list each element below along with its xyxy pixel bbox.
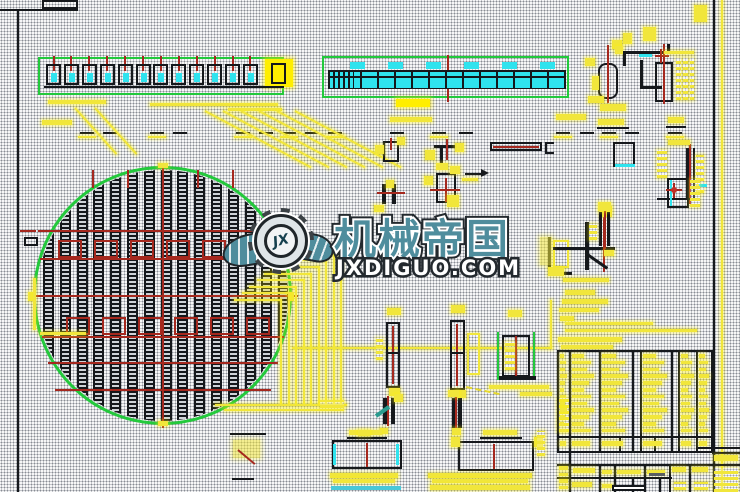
dimension-text-block <box>657 150 667 178</box>
clamp-insert <box>176 73 182 82</box>
dimension-mark <box>666 136 684 138</box>
dimension-mark <box>483 430 517 435</box>
dimension-mark <box>617 470 641 474</box>
centerline <box>515 336 517 380</box>
dimension-mark <box>585 58 595 66</box>
bom-header-text <box>572 441 590 446</box>
clamp-unit <box>118 64 133 85</box>
cyan-highlight <box>540 62 555 69</box>
bom-column-line <box>678 350 680 452</box>
bom-text <box>572 422 584 426</box>
line <box>597 127 629 129</box>
bom-text <box>681 395 692 399</box>
bom-text <box>699 395 708 399</box>
dimension-mark <box>224 409 344 411</box>
line <box>607 212 610 246</box>
clamp-unit <box>189 64 204 85</box>
line <box>659 477 661 492</box>
clamp-unit <box>207 64 222 85</box>
dimension-mark <box>664 51 694 54</box>
green-line <box>533 332 535 380</box>
bom-text <box>602 408 628 412</box>
bom-text <box>643 402 659 406</box>
line <box>557 350 712 352</box>
line <box>640 86 662 89</box>
sheet-border <box>0 9 78 11</box>
red-detail-box <box>130 240 154 258</box>
yellow-detail-box <box>467 333 480 375</box>
bom-text <box>560 408 567 412</box>
frame-tab <box>42 0 78 9</box>
centerline <box>456 324 458 386</box>
cyan-highlight <box>502 62 517 69</box>
bom-text <box>643 422 656 426</box>
dimension-mark <box>430 485 530 490</box>
part-outline <box>24 237 38 246</box>
bom-text <box>560 422 564 426</box>
bom-column-line <box>671 350 673 452</box>
dimension-mark <box>692 467 708 472</box>
title-block-text <box>559 466 568 470</box>
line <box>390 132 404 134</box>
cyan-highlight <box>350 62 365 69</box>
bom-text <box>560 354 564 358</box>
cyan-highlight <box>464 62 479 69</box>
bom-header-text <box>560 441 566 446</box>
bom-text <box>699 422 705 426</box>
bom-text <box>572 368 587 372</box>
beam-side-view <box>328 70 566 89</box>
line <box>689 464 691 492</box>
dimension-halo <box>540 237 552 265</box>
red-detail-box <box>138 317 162 335</box>
bom-text <box>572 381 589 385</box>
dimension-mark <box>600 104 626 111</box>
gear-hub: JX <box>264 224 298 258</box>
bom-text <box>643 361 664 365</box>
line <box>640 60 643 88</box>
line <box>499 376 536 380</box>
dimension-mark <box>432 479 528 483</box>
dimension-mark <box>668 140 690 145</box>
dimension-text-block <box>690 58 694 100</box>
line <box>450 352 465 354</box>
title-block-text <box>559 479 568 483</box>
clamp-unit <box>46 64 61 85</box>
bom-text <box>572 402 587 406</box>
dimension-mark <box>598 119 624 125</box>
bom-column-line <box>569 350 571 452</box>
bom-column-line <box>696 350 698 452</box>
dimension-text-block <box>683 58 688 100</box>
dimension-mark <box>451 305 465 313</box>
dimension-mark <box>78 136 96 138</box>
clamp-unit <box>153 64 168 85</box>
bom-text <box>699 368 706 372</box>
bom-text <box>681 415 691 419</box>
red-detail-box <box>58 240 82 258</box>
bom-text <box>560 402 565 406</box>
margin-line <box>721 0 723 492</box>
beam-edge-line <box>328 76 566 78</box>
bom-text <box>572 429 591 433</box>
bom-text <box>681 381 691 385</box>
bom-text <box>699 408 709 412</box>
bom-text <box>560 381 565 385</box>
winged-gear-icon: JX <box>222 208 334 292</box>
line <box>386 352 400 354</box>
clamp-unit <box>136 64 151 85</box>
bom-text <box>560 429 566 433</box>
center-dot <box>671 187 677 193</box>
bom-column-line <box>599 350 601 452</box>
bom-text <box>602 422 616 426</box>
dimension-mark <box>602 484 612 488</box>
centerline <box>660 49 662 63</box>
dimension-mark <box>40 332 86 335</box>
dimension-mark <box>242 292 288 294</box>
dimension-mark <box>565 322 653 325</box>
centerline <box>377 192 405 194</box>
bom-text <box>681 402 690 406</box>
cyan-bar <box>331 486 401 490</box>
line <box>458 398 462 428</box>
centerline <box>446 139 448 160</box>
dimension-mark <box>559 308 599 312</box>
bom-text <box>681 388 688 392</box>
line <box>347 437 387 439</box>
bom-text <box>643 395 664 399</box>
bom-column-line <box>711 350 713 452</box>
dimension-mark <box>390 117 432 122</box>
dimension-mark <box>643 27 656 41</box>
line <box>698 447 740 449</box>
centerline <box>20 230 36 232</box>
dimension-mark <box>288 292 290 404</box>
bom-text <box>602 402 619 406</box>
title-block-text <box>559 486 568 490</box>
red-detail-box <box>94 240 118 258</box>
bom-text <box>560 395 566 399</box>
bom-text <box>560 368 565 372</box>
dimension-mark <box>333 479 395 483</box>
centerline <box>197 170 199 188</box>
centerline <box>655 55 669 57</box>
line <box>557 436 712 438</box>
bom-text <box>572 415 589 419</box>
bom-text <box>643 368 659 372</box>
bom-text <box>643 415 662 419</box>
leader-line <box>94 107 137 154</box>
dimension-mark <box>33 278 36 330</box>
bom-text <box>602 388 616 392</box>
bom-text <box>681 422 688 426</box>
dimension-mark <box>436 163 448 170</box>
logo-monogram: JX <box>271 231 290 250</box>
bom-text <box>602 361 625 365</box>
dimension-mark <box>520 392 552 396</box>
bom-header-text <box>643 441 662 446</box>
watermark-brand-name: 机械帝国 机械帝国 机械帝国 <box>334 206 538 258</box>
dimension-text-block <box>320 400 344 408</box>
red-detail-box <box>210 317 234 335</box>
dimension-mark <box>573 468 595 473</box>
clamp-unit <box>225 64 240 85</box>
dimension-mark <box>358 430 370 436</box>
line <box>669 464 671 492</box>
bom-text <box>602 395 625 399</box>
line <box>712 452 740 454</box>
clamp-insert <box>105 73 111 82</box>
centerline <box>390 138 392 150</box>
centerline <box>607 45 609 103</box>
bom-text <box>560 361 566 365</box>
bom-text <box>699 429 708 433</box>
dimension-mark <box>508 310 522 317</box>
line <box>557 451 712 453</box>
dimension-text-block <box>376 338 383 360</box>
clip-outline <box>545 142 554 154</box>
bom-text <box>643 374 667 378</box>
bom-text <box>643 388 656 392</box>
watermark: JX 机械帝国 机械帝国 机械帝国 JXDIGUO.COM JXDIGUO.CO… <box>222 204 538 292</box>
dimension-mark <box>148 136 166 138</box>
dimension-mark <box>562 299 608 304</box>
line <box>232 478 254 480</box>
clamp-insert <box>230 73 236 82</box>
bom-column-line <box>640 350 642 452</box>
clamp-unit <box>171 64 186 85</box>
cyan-highlight <box>388 62 403 69</box>
dimension-mark <box>303 279 305 404</box>
bom-text <box>643 429 664 433</box>
line <box>459 132 473 134</box>
bom-header-text <box>602 441 623 446</box>
bom-text <box>602 374 628 378</box>
bom-text <box>699 402 706 406</box>
bom-text <box>602 415 622 419</box>
clamp-unit <box>100 64 115 85</box>
bom-text <box>643 354 656 358</box>
cyan-highlight <box>639 54 652 57</box>
dimension-mark <box>450 166 460 174</box>
line <box>625 132 639 134</box>
cyan-highlight <box>699 184 707 187</box>
end-hatch <box>328 72 354 88</box>
part-outline <box>458 441 534 471</box>
dimension-text-block <box>505 342 515 370</box>
dimension-mark <box>672 467 686 472</box>
dimension-mark <box>561 345 613 349</box>
cyan-highlight <box>615 164 635 167</box>
dimension-mark <box>623 33 632 44</box>
dimension-mark <box>386 180 394 188</box>
centerline <box>162 170 164 188</box>
dimension-mark <box>397 137 405 145</box>
centerline <box>604 209 606 249</box>
clamp-insert <box>87 73 93 82</box>
dimension-mark <box>451 437 460 447</box>
bom-text <box>560 388 564 392</box>
clamp-unit <box>82 64 97 85</box>
title-block-text <box>559 473 568 477</box>
bom-text <box>643 408 667 412</box>
red-detail-box <box>246 317 270 335</box>
line <box>44 86 284 88</box>
centerline <box>127 170 129 188</box>
dimension-mark <box>228 108 282 111</box>
dimension-mark <box>452 428 461 435</box>
dimension-mark <box>489 385 549 389</box>
line <box>712 464 740 466</box>
clamp-insert <box>51 73 57 82</box>
bom-text <box>681 354 688 358</box>
dimension-mark <box>615 46 623 54</box>
clamp-insert <box>194 73 200 82</box>
dimension-mark <box>330 473 398 478</box>
dimension-mark <box>556 114 586 120</box>
clamp-insert <box>141 73 147 82</box>
dimension-mark <box>598 202 611 211</box>
clamp-insert <box>212 73 218 82</box>
cyan-highlight <box>396 444 399 465</box>
bom-text <box>699 374 709 378</box>
dimension-mark <box>48 100 106 104</box>
green-line <box>497 332 499 380</box>
dimension-mark <box>668 117 684 123</box>
dimension-mark <box>289 292 294 301</box>
red-detail-box <box>174 317 198 335</box>
clamp-insert <box>248 73 254 82</box>
line <box>623 51 626 66</box>
bom-text <box>560 415 565 419</box>
dimension-text-block <box>674 482 686 490</box>
dimension-mark <box>387 308 401 315</box>
bom-text <box>572 354 584 358</box>
bom-text <box>681 429 692 433</box>
dimension-mark <box>602 470 612 474</box>
dimension-mark <box>565 329 697 332</box>
centerline <box>232 170 234 188</box>
dimension-mark <box>455 143 464 152</box>
dimension-mark <box>150 103 278 106</box>
line <box>599 212 602 246</box>
watermark-website-fill: JXDIGUO.COM <box>336 256 521 280</box>
line <box>569 452 571 492</box>
bom-column-line <box>632 350 634 452</box>
cad-drawing-sheet: JX 机械帝国 机械帝国 机械帝国 JXDIGUO.COM JXDIGUO.CO… <box>0 0 740 492</box>
vertical-centerline <box>162 166 164 428</box>
line <box>602 132 616 134</box>
title-block-bar <box>649 473 665 476</box>
bom-text <box>699 361 708 365</box>
dimension-mark <box>158 421 168 426</box>
line <box>230 433 266 435</box>
dimension-text-block <box>690 179 700 207</box>
sheet-border <box>713 0 715 492</box>
line <box>150 132 164 134</box>
watermark-website: JXDIGUO.COM JXDIGUO.COM <box>336 256 536 282</box>
dimension-mark <box>428 473 532 478</box>
centerline <box>92 170 94 188</box>
red-detail-box <box>102 317 126 335</box>
dimension-mark <box>394 394 403 402</box>
bom-header-text <box>699 441 707 446</box>
bom-text <box>681 361 692 365</box>
bom-text <box>572 395 591 399</box>
dimension-tag <box>396 99 430 107</box>
dimension-text-block <box>676 58 681 100</box>
centerline <box>387 396 389 426</box>
line <box>80 132 94 134</box>
line <box>465 173 483 175</box>
sheet-border <box>17 9 19 492</box>
dimension-mark <box>295 286 297 404</box>
bom-text <box>602 368 619 372</box>
line <box>666 126 686 128</box>
centerline <box>455 394 457 430</box>
bom-text <box>699 388 705 392</box>
dimension-mark <box>234 299 280 301</box>
dimension-text-block <box>589 224 597 240</box>
bom-text <box>681 374 694 378</box>
dimension-mark <box>424 176 433 185</box>
clamp-unit <box>243 64 258 85</box>
bom-text <box>699 381 707 385</box>
red-detail-box <box>166 240 190 258</box>
clamp-unit <box>271 63 286 84</box>
dimension-text-block <box>694 482 708 490</box>
line <box>432 132 446 134</box>
line <box>173 132 187 134</box>
clamp-unit <box>64 64 79 85</box>
dimension-mark <box>158 163 168 168</box>
bom-text <box>572 374 594 378</box>
clamp-insert <box>158 73 164 82</box>
dimension-mark <box>234 136 252 138</box>
bom-text <box>572 361 591 365</box>
centerline <box>30 295 298 297</box>
dimension-mark <box>280 299 282 404</box>
yellow-detail-box <box>553 240 569 268</box>
line <box>599 464 601 492</box>
line <box>480 437 522 439</box>
bom-text <box>602 429 625 433</box>
dimension-mark <box>462 178 478 181</box>
bom-column-line <box>557 350 559 452</box>
bom-text <box>560 374 567 378</box>
dimension-mark <box>565 290 595 295</box>
bom-text <box>602 381 622 385</box>
line <box>668 132 682 134</box>
dimension-mark <box>600 136 618 138</box>
bom-text <box>572 388 584 392</box>
dimension-mark <box>375 145 384 154</box>
dimension-text-block <box>714 468 738 492</box>
bom-text <box>572 408 594 412</box>
bom-text <box>643 381 662 385</box>
cyan-highlight <box>333 444 336 465</box>
centerline <box>493 444 495 469</box>
line <box>556 132 570 134</box>
dimension-mark <box>572 482 592 487</box>
line <box>580 132 594 134</box>
centerline <box>392 326 394 384</box>
dimension-mark <box>425 150 435 160</box>
bom-text <box>602 354 616 358</box>
title-block-cell <box>612 485 646 491</box>
clamp-insert <box>123 73 129 82</box>
